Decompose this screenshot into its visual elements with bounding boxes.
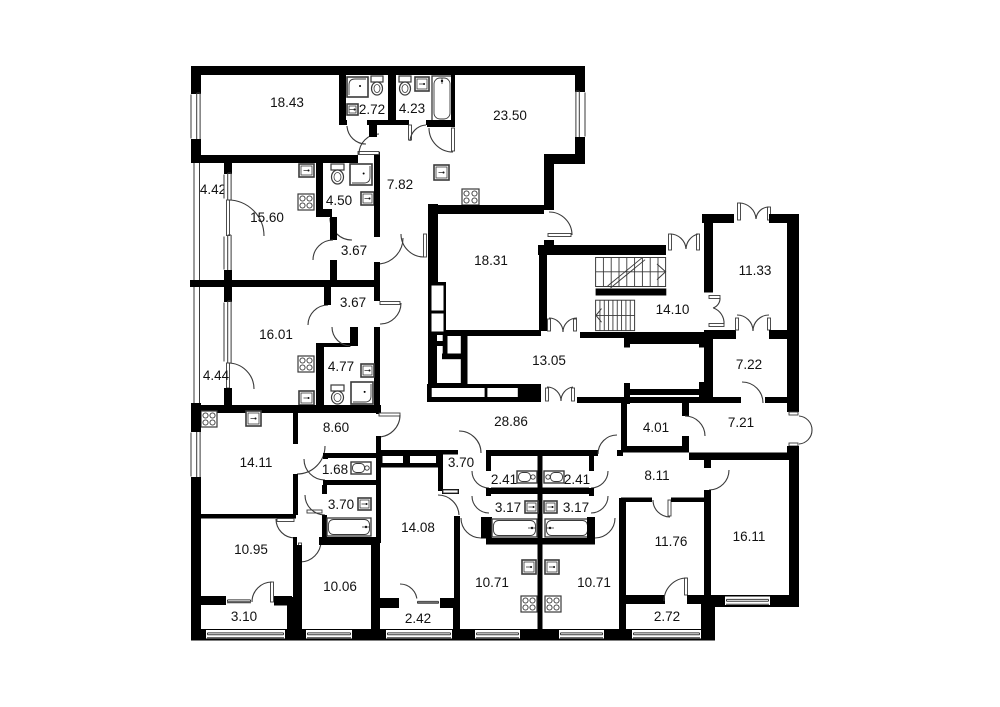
svg-text:11.33: 11.33 <box>739 263 772 278</box>
svg-text:28.86: 28.86 <box>494 414 528 429</box>
svg-text:16.01: 16.01 <box>259 327 293 342</box>
svg-text:16.11: 16.11 <box>733 529 766 544</box>
svg-text:3.70: 3.70 <box>328 497 354 512</box>
svg-text:3.17: 3.17 <box>495 500 521 515</box>
svg-text:14.08: 14.08 <box>401 520 435 535</box>
svg-text:18.31: 18.31 <box>474 253 508 268</box>
svg-text:14.11: 14.11 <box>240 455 273 470</box>
svg-text:2.42: 2.42 <box>405 611 431 626</box>
svg-text:2.41: 2.41 <box>564 472 590 487</box>
svg-text:4.44: 4.44 <box>203 368 230 383</box>
svg-text:14.10: 14.10 <box>656 302 690 317</box>
svg-text:4.50: 4.50 <box>326 193 352 208</box>
svg-text:8.11: 8.11 <box>644 468 669 483</box>
svg-text:23.50: 23.50 <box>493 108 527 123</box>
svg-text:10.95: 10.95 <box>234 542 268 557</box>
svg-text:2.72: 2.72 <box>359 102 385 117</box>
svg-text:2.72: 2.72 <box>654 609 680 624</box>
svg-text:2.41: 2.41 <box>491 472 517 487</box>
svg-text:10.71: 10.71 <box>577 575 611 590</box>
svg-text:3.67: 3.67 <box>340 295 366 310</box>
svg-text:11.76: 11.76 <box>655 534 688 549</box>
svg-text:3.70: 3.70 <box>448 455 474 470</box>
svg-text:4.23: 4.23 <box>399 101 425 116</box>
svg-text:1.68: 1.68 <box>322 462 348 477</box>
svg-text:8.60: 8.60 <box>323 420 349 435</box>
svg-text:7.21: 7.21 <box>728 415 754 430</box>
svg-text:7.22: 7.22 <box>736 357 762 372</box>
svg-text:10.06: 10.06 <box>323 579 357 594</box>
svg-text:3.67: 3.67 <box>341 243 367 258</box>
svg-text:4.01: 4.01 <box>643 420 669 435</box>
svg-text:4.42: 4.42 <box>200 182 226 197</box>
svg-text:4.77: 4.77 <box>328 359 354 374</box>
svg-text:3.10: 3.10 <box>231 609 257 624</box>
svg-text:10.71: 10.71 <box>475 575 509 590</box>
svg-text:15.60: 15.60 <box>250 210 284 225</box>
svg-text:13.05: 13.05 <box>532 353 566 368</box>
svg-text:7.82: 7.82 <box>387 177 413 192</box>
svg-text:3.17: 3.17 <box>563 500 589 515</box>
svg-text:18.43: 18.43 <box>270 95 304 110</box>
